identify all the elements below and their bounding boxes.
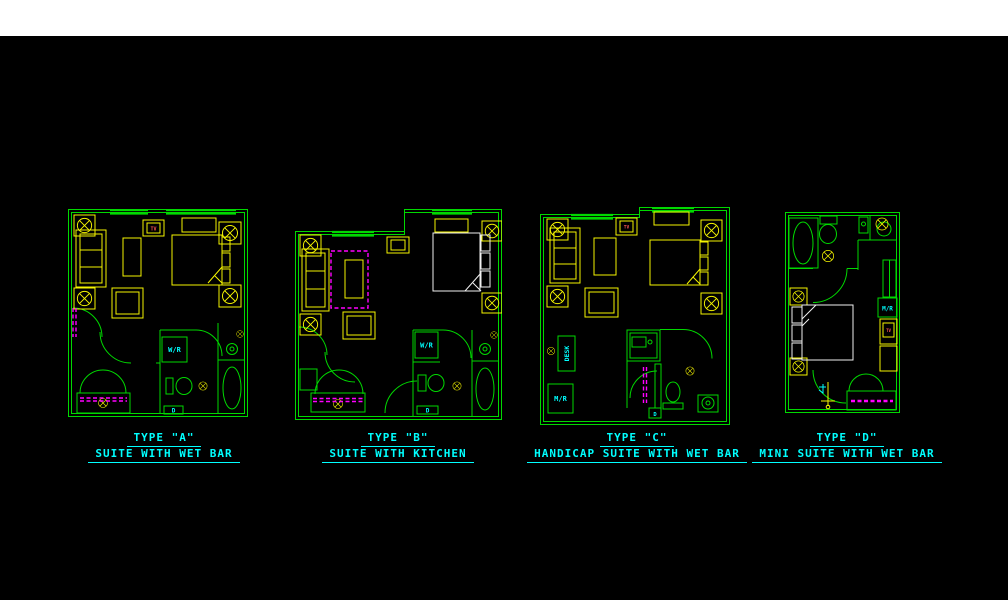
tv-label: TV bbox=[886, 328, 891, 333]
light-icon bbox=[199, 382, 207, 390]
tp-holder bbox=[859, 217, 868, 233]
dresser bbox=[880, 346, 897, 371]
entry-door-arcs bbox=[73, 308, 131, 363]
walls-d bbox=[786, 213, 900, 413]
wet-bar-label: W/R bbox=[420, 342, 433, 350]
walls-a bbox=[69, 210, 248, 417]
plan-b-title-line1: TYPE "B" bbox=[361, 431, 436, 447]
armchair bbox=[585, 288, 618, 317]
toilet-icon bbox=[166, 378, 192, 395]
plan-a-title-line1: TYPE "A" bbox=[127, 431, 202, 447]
floor-plan-c[interactable]: DESK M/R D TV bbox=[540, 207, 730, 425]
entry-door-arc bbox=[813, 370, 846, 403]
furniture-d bbox=[790, 218, 897, 409]
window-icon bbox=[571, 208, 694, 219]
door-tag-label: D bbox=[653, 412, 657, 418]
lamp-table-icons bbox=[547, 219, 722, 314]
light-icon bbox=[547, 347, 555, 355]
closet-door-arcs bbox=[315, 370, 363, 394]
light-icon bbox=[876, 218, 888, 230]
light-icon bbox=[237, 331, 244, 338]
floor-plan-b[interactable]: W/R D bbox=[295, 209, 502, 420]
console-table bbox=[594, 238, 616, 275]
bathtub-icon bbox=[476, 368, 494, 410]
walls-b bbox=[296, 210, 502, 420]
floor-plan-d[interactable]: M/R TV bbox=[785, 212, 900, 413]
tv-stand bbox=[387, 237, 409, 253]
plan-c-title-line1: TYPE "C" bbox=[600, 431, 675, 447]
floor-plan-a[interactable]: W/R D TV bbox=[68, 209, 248, 417]
furniture-c bbox=[547, 212, 722, 375]
console-table bbox=[123, 238, 141, 276]
entry-door-arc bbox=[385, 381, 417, 413]
keynote-arrow-icon bbox=[819, 384, 826, 393]
wardrobe bbox=[883, 260, 896, 297]
bed bbox=[433, 233, 490, 291]
mini-fridge-label: M/R bbox=[882, 306, 893, 313]
roll-in-shower bbox=[627, 330, 660, 361]
toilet-icon bbox=[418, 375, 444, 392]
bathroom-door-arc bbox=[683, 330, 712, 359]
bed bbox=[650, 212, 708, 285]
plan-c-title-line2: HANDICAP SUITE WITH WET BAR bbox=[527, 447, 747, 463]
tv-label: TV bbox=[624, 225, 630, 231]
lamp-table-icons bbox=[790, 288, 807, 375]
light-icon bbox=[686, 367, 694, 375]
door-tag-label: D bbox=[172, 408, 176, 415]
mini-fridge-label: M/R bbox=[554, 395, 567, 403]
sink-icon bbox=[227, 344, 238, 355]
bathtub-icon bbox=[789, 218, 818, 268]
bed bbox=[792, 305, 853, 360]
closet bbox=[311, 393, 365, 412]
kitchen-table bbox=[345, 260, 363, 298]
bathroom-door-arc bbox=[443, 330, 471, 358]
lamp-table-icons bbox=[300, 221, 502, 335]
plan-d-title[interactable]: TYPE "D" MINI SUITE WITH WET BAR bbox=[727, 431, 967, 463]
desk-label: DESK bbox=[563, 346, 571, 362]
plan-a-title-line2: SUITE WITH WET BAR bbox=[88, 447, 239, 463]
plan-d-title-line2: MINI SUITE WITH WET BAR bbox=[752, 447, 941, 463]
door-tag-label: D bbox=[426, 408, 430, 415]
plan-b-title[interactable]: TYPE "B" SUITE WITH KITCHEN bbox=[268, 431, 528, 463]
paper-margin-strip bbox=[0, 0, 1008, 36]
sink-icon bbox=[480, 344, 491, 355]
closet-door-arcs bbox=[80, 370, 126, 393]
bathtub-icon bbox=[223, 367, 241, 409]
light-icon bbox=[453, 382, 461, 390]
wet-bar-label: W/R bbox=[168, 346, 181, 354]
pillow bbox=[435, 219, 468, 232]
light-icon bbox=[822, 250, 833, 261]
light-icon bbox=[99, 399, 108, 408]
toilet-icon bbox=[820, 216, 838, 244]
tv-label: TV bbox=[150, 227, 156, 233]
cad-viewport[interactable]: W/R D TV bbox=[0, 0, 1008, 600]
window-icon bbox=[110, 210, 236, 214]
toilet-icon bbox=[663, 382, 683, 409]
armchair bbox=[343, 312, 375, 339]
bathroom-door-arc bbox=[813, 269, 847, 303]
armchair bbox=[112, 288, 143, 318]
plan-d-title-line1: TYPE "D" bbox=[810, 431, 885, 447]
plan-b-title-line2: SUITE WITH KITCHEN bbox=[322, 447, 473, 463]
sofa bbox=[76, 230, 106, 287]
plan-a-title[interactable]: TYPE "A" SUITE WITH WET BAR bbox=[34, 431, 294, 463]
sofa bbox=[302, 249, 329, 311]
sofa bbox=[550, 228, 580, 283]
shelf bbox=[300, 369, 317, 390]
closet-door-arcs bbox=[849, 374, 883, 391]
closet bbox=[77, 393, 130, 413]
sink-icon bbox=[698, 395, 718, 412]
grab-rail-dashed-lines bbox=[644, 367, 647, 403]
bed bbox=[172, 218, 230, 285]
light-icon bbox=[491, 332, 498, 339]
